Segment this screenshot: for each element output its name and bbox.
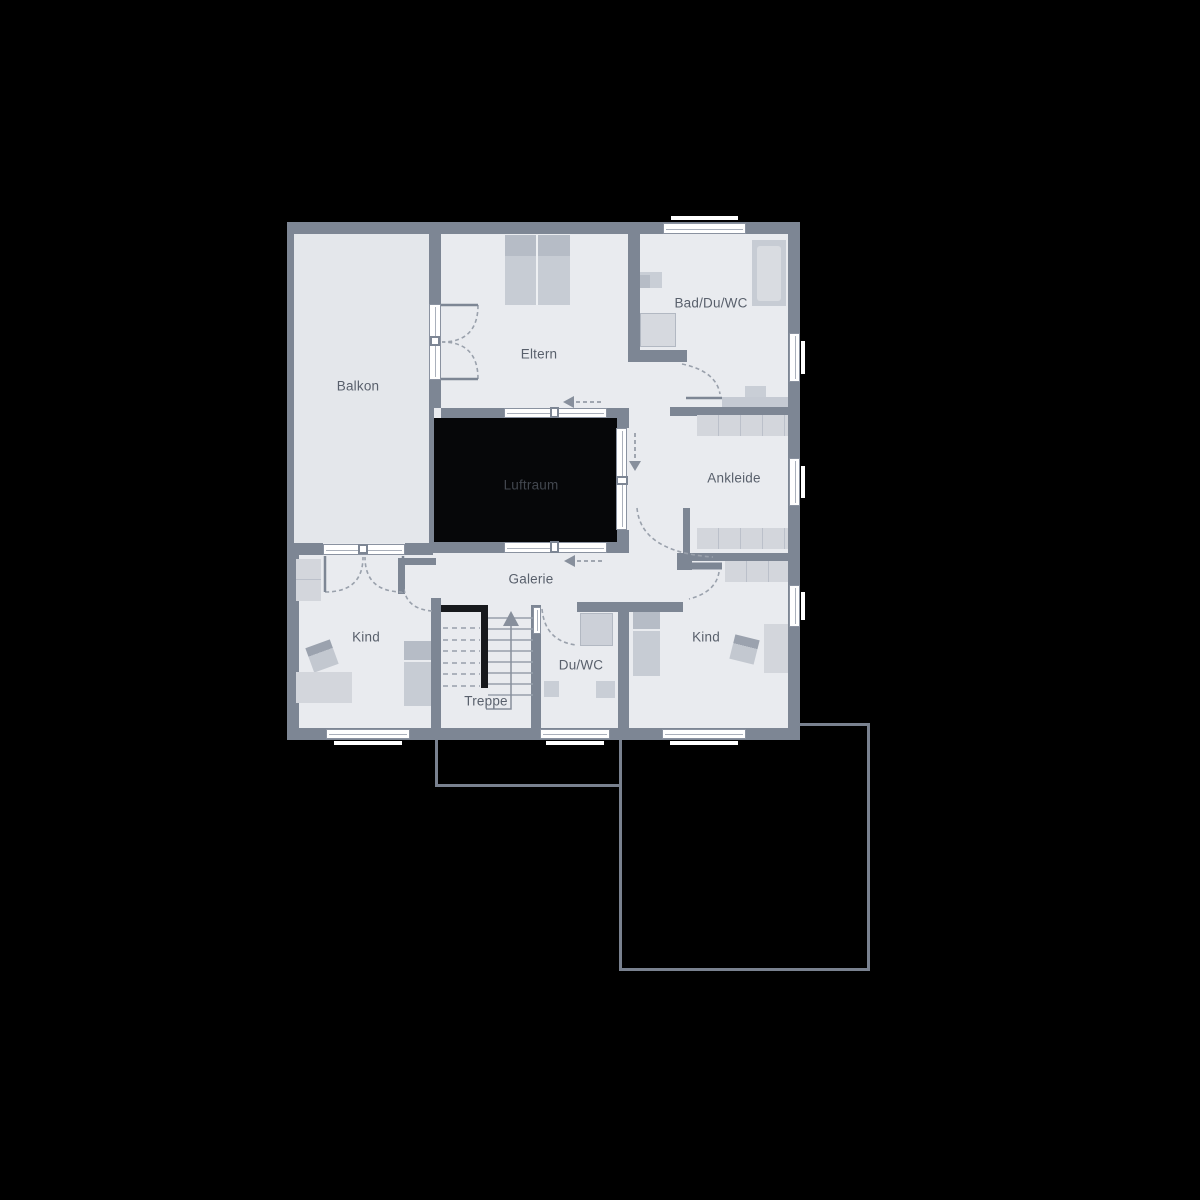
floor-plan: Balkon Eltern Bad/Du/WC Ankleide Luftrau… [0,0,1200,1200]
wall-luftraum-right-lower [617,530,629,542]
wall-treppe-left [431,598,441,728]
desk-kind-right [764,624,788,673]
railing-post-right [616,476,628,485]
desk-kind-left [296,672,352,703]
wall-eltern-right [628,234,640,352]
window-kind-left-bottom [326,729,410,739]
bed-kind-right-pillow [633,612,660,629]
shower-bad [640,313,676,347]
wall-luftraum-top-left [441,408,504,418]
door-post-kind-left [358,544,368,554]
sideboard-bad [722,397,788,407]
room-label-galerie: Galerie [509,572,554,587]
wall-galerie-bottom [577,602,683,612]
wall-ankleide-bottom [677,553,788,561]
window-sill [334,741,402,745]
wardrobe-ankleide-bottom [697,528,788,549]
wall-balkon-eltern-upper [429,234,441,304]
wall-outer-left-balcony [287,234,294,543]
bed-eltern-divider [536,235,538,305]
bed-kind-right [633,631,660,676]
railing-post-bottom [550,541,559,553]
bed-kind-left-pillow [404,641,431,660]
washbasin-duwc [544,681,559,697]
washbasin-bad-cabinet [640,275,650,288]
wall-bad-bottom [628,350,687,362]
room-label-duwc: Du/WC [559,658,604,673]
ground-floor-outline [437,725,869,970]
window-bad-right [789,333,800,382]
window-duwc-bottom [540,729,610,739]
room-label-kind-left: Kind [352,630,380,645]
wall-galerie-stub-h [398,558,436,565]
wall-kind-right-jamb [677,553,692,570]
wall-luftraum-top-right [607,408,629,418]
wall-luftraum-right-upper [617,418,629,428]
window-bad-top [663,223,746,234]
dresser-kind-left [296,559,321,601]
wall-balkon-bottom-right [405,543,433,555]
window-kind-right-bottom [662,729,746,739]
window-sill [670,741,738,745]
bathtub-inner [757,246,781,301]
room-label-treppe: Treppe [464,694,507,709]
window-sill [801,341,805,374]
railing-post-top [550,407,559,418]
wardrobe-kind-right [725,561,788,582]
shower-duwc [580,613,613,646]
room-label-eltern: Eltern [521,347,557,362]
wall-luftraum-left [429,408,434,543]
wall-corridor-jamb [683,508,690,558]
door-post-eltern [430,336,440,346]
wall-balkon-eltern-lower [429,380,441,408]
room-label-bad: Bad/Du/WC [674,296,747,311]
room-label-ankleide: Ankleide [707,471,760,486]
toilet-duwc [596,681,615,698]
wall-balkon-bottom-left [294,543,323,555]
window-kind-right [789,585,800,627]
duwc-door-leaf [533,607,541,634]
bed-kind-left [404,662,431,706]
room-label-luftraum: Luftraum [504,478,559,493]
window-sill [671,216,738,220]
wall-luftraum-bottom-left [433,542,504,553]
stair-rail-side [481,605,488,688]
wall-duwc-kind-divider [618,602,629,728]
window-sill [546,741,604,745]
window-sill [801,592,805,620]
room-label-kind-right: Kind [692,630,720,645]
room-label-balkon: Balkon [337,379,379,394]
window-ankleide-right [789,458,800,506]
window-sill [801,466,805,498]
wall-luftraum-bottom-right [607,542,629,553]
wall-galerie-stub-v [398,565,405,594]
wardrobe-ankleide-top [697,415,788,436]
